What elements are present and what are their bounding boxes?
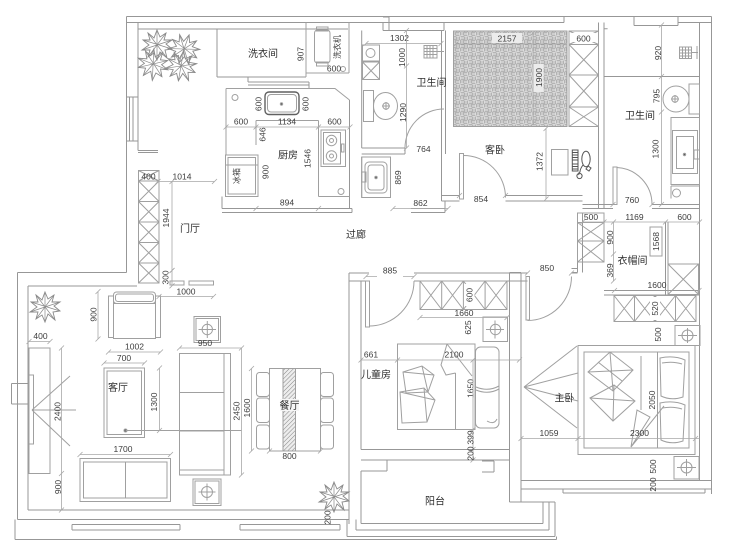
svg-text:200: 200 [466, 446, 476, 460]
svg-text:衣帽间: 衣帽间 [618, 254, 648, 267]
svg-text:卫生间: 卫生间 [625, 109, 655, 122]
svg-text:厨房: 厨房 [278, 149, 298, 162]
svg-text:1944: 1944 [161, 208, 171, 227]
svg-text:200: 200 [648, 477, 658, 491]
svg-text:862: 862 [413, 198, 427, 208]
svg-text:600: 600 [465, 288, 475, 302]
svg-text:700: 700 [117, 353, 131, 363]
svg-text:1300: 1300 [651, 139, 661, 158]
svg-text:客卧: 客卧 [485, 144, 505, 157]
svg-text:1290: 1290 [398, 103, 408, 122]
svg-text:餐厅: 餐厅 [280, 399, 300, 412]
svg-text:600: 600 [327, 117, 341, 127]
svg-text:800: 800 [282, 451, 296, 461]
svg-text:1300: 1300 [149, 392, 159, 411]
svg-text:1546: 1546 [303, 149, 313, 168]
svg-text:520: 520 [650, 301, 660, 315]
svg-text:2400: 2400 [53, 402, 63, 421]
svg-text:卫生间: 卫生间 [417, 76, 447, 89]
svg-text:869: 869 [393, 170, 403, 184]
svg-text:661: 661 [364, 350, 378, 360]
svg-text:1660: 1660 [455, 308, 474, 318]
svg-text:1169: 1169 [625, 212, 644, 222]
svg-text:600: 600 [234, 117, 248, 127]
svg-text:1000: 1000 [177, 287, 196, 297]
svg-text:600: 600 [301, 97, 311, 111]
svg-text:600: 600 [576, 34, 590, 44]
svg-text:646: 646 [258, 127, 268, 141]
svg-text:907: 907 [296, 47, 306, 61]
svg-text:625: 625 [463, 320, 473, 334]
svg-text:1002: 1002 [125, 342, 144, 352]
svg-text:369: 369 [605, 263, 615, 277]
svg-text:760: 760 [625, 195, 639, 205]
svg-text:900: 900 [261, 165, 271, 179]
svg-text:795: 795 [652, 89, 662, 103]
svg-text:500: 500 [584, 212, 598, 222]
svg-text:客厅: 客厅 [108, 381, 128, 394]
svg-text:儿童房: 儿童房 [361, 368, 391, 381]
svg-text:1014: 1014 [173, 172, 192, 182]
svg-text:门厅: 门厅 [180, 222, 200, 235]
svg-text:400: 400 [141, 172, 155, 182]
svg-text:600: 600 [327, 64, 341, 74]
svg-text:400: 400 [33, 331, 47, 341]
svg-text:600: 600 [677, 212, 691, 222]
svg-text:894: 894 [280, 198, 294, 208]
svg-text:950: 950 [198, 338, 212, 348]
svg-text:冰箱: 冰箱 [232, 168, 242, 184]
svg-text:1650: 1650 [466, 379, 476, 398]
svg-text:1568: 1568 [651, 232, 661, 251]
svg-text:2450: 2450 [232, 401, 242, 420]
svg-text:洗衣机: 洗衣机 [332, 35, 342, 59]
svg-text:854: 854 [474, 194, 488, 204]
svg-text:2157: 2157 [498, 34, 517, 44]
svg-text:885: 885 [383, 266, 397, 276]
svg-text:1900: 1900 [534, 68, 544, 87]
svg-text:洗衣间: 洗衣间 [248, 47, 278, 60]
svg-text:1372: 1372 [535, 152, 545, 171]
svg-text:600: 600 [254, 97, 264, 111]
svg-text:500: 500 [653, 327, 663, 341]
svg-text:1134: 1134 [278, 117, 297, 127]
svg-text:1059: 1059 [540, 428, 559, 438]
svg-text:200: 200 [323, 510, 333, 524]
svg-text:1600: 1600 [242, 398, 252, 417]
svg-text:300: 300 [161, 270, 171, 284]
svg-text:850: 850 [540, 263, 554, 273]
svg-text:2300: 2300 [630, 428, 649, 438]
svg-text:1000: 1000 [397, 48, 407, 67]
svg-text:764: 764 [416, 144, 430, 154]
svg-text:主卧: 主卧 [555, 392, 575, 405]
svg-text:过廊: 过廊 [346, 228, 366, 241]
svg-text:900: 900 [89, 307, 99, 321]
svg-text:阳台: 阳台 [425, 495, 445, 508]
svg-text:1700: 1700 [114, 444, 133, 454]
svg-text:2050: 2050 [647, 390, 657, 409]
svg-text:500: 500 [648, 459, 658, 473]
svg-text:399: 399 [466, 430, 476, 444]
svg-text:2100: 2100 [445, 350, 464, 360]
svg-text:1600: 1600 [648, 280, 667, 290]
